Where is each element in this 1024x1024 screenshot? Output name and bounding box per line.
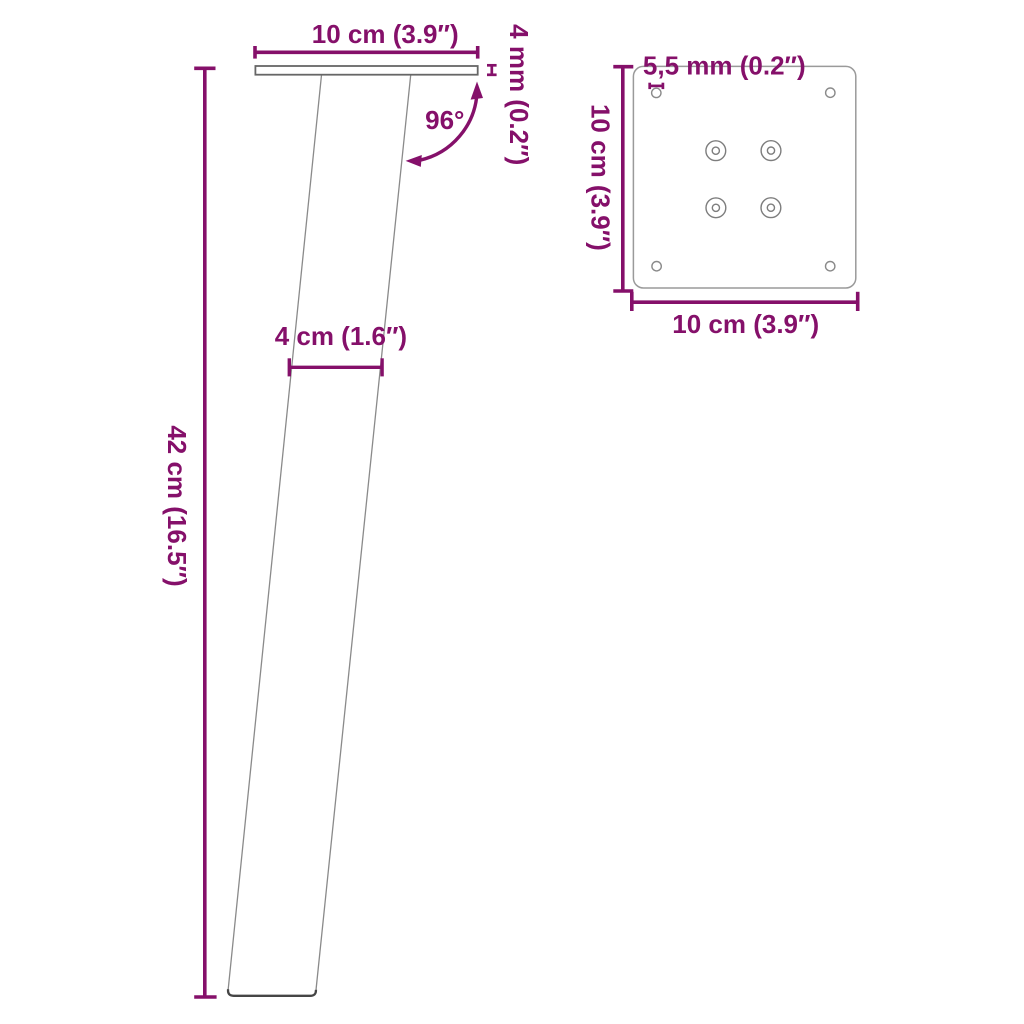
svg-text:10 cm (3.9″): 10 cm (3.9″) [672,309,819,339]
svg-text:4 mm (0.2″): 4 mm (0.2″) [504,24,534,165]
svg-text:10 cm (3.9″): 10 cm (3.9″) [585,104,615,251]
svg-text:4 cm (1.6″): 4 cm (1.6″) [275,321,407,351]
svg-text:42 cm (16.5″): 42 cm (16.5″) [162,425,192,586]
svg-text:96°: 96° [425,105,464,135]
svg-text:10 cm (3.9″): 10 cm (3.9″) [312,19,459,49]
svg-text:5,5 mm (0.2″): 5,5 mm (0.2″) [643,50,806,80]
